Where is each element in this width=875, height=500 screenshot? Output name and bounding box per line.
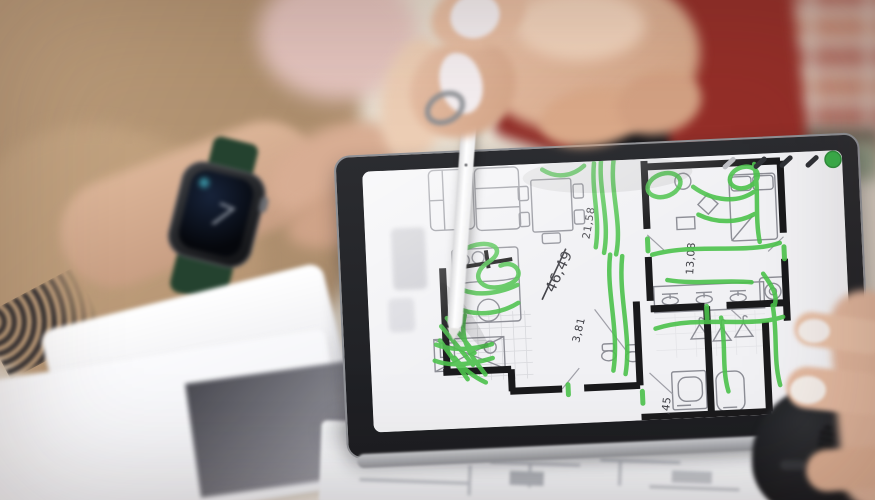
mouse-side-button: [780, 460, 806, 470]
watch-time: 7: [205, 195, 238, 238]
holding-finger-upper-nail: [798, 319, 830, 343]
screen-glare: [362, 150, 853, 433]
stylus-tip: [446, 328, 461, 341]
watch-complication: [198, 177, 210, 189]
floorplan-app: 21,58 46,49 13,08 3,81 ,45: [362, 150, 853, 433]
holding-thumb: [805, 445, 875, 493]
tablet-screen: 21,58 46,49 13,08 3,81 ,45: [362, 150, 853, 433]
holding-finger-lower-nail: [790, 376, 826, 404]
stylus-seam-dot: [464, 163, 467, 166]
photo-scene: 7: [0, 0, 875, 500]
